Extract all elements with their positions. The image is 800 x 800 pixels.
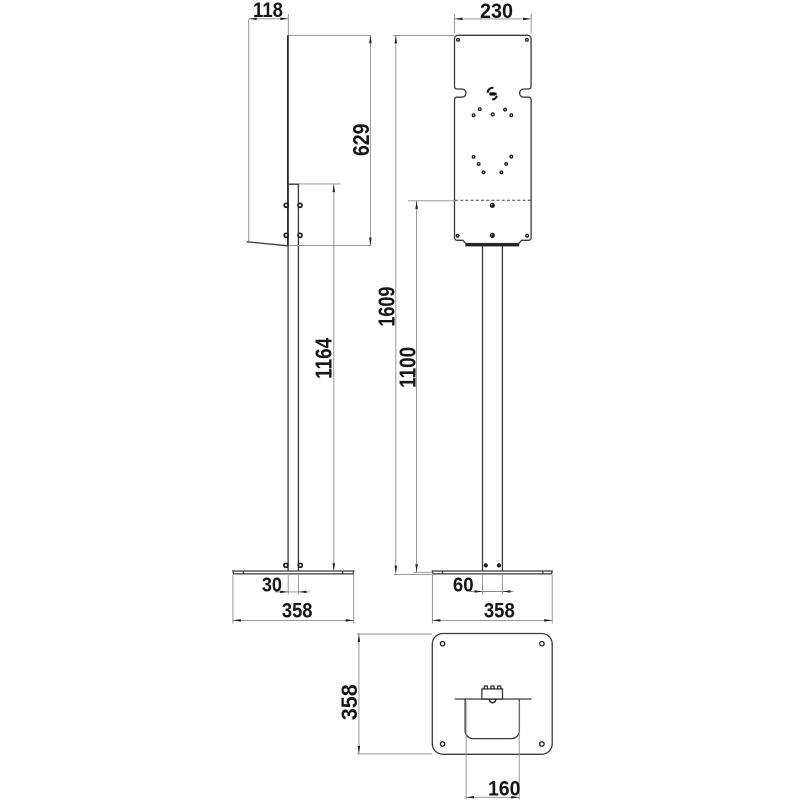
svg-text:160: 160 bbox=[488, 776, 521, 800]
svg-text:60: 60 bbox=[453, 574, 474, 597]
svg-text:1609: 1609 bbox=[374, 287, 400, 327]
svg-text:358: 358 bbox=[337, 684, 362, 720]
svg-text:358: 358 bbox=[484, 598, 515, 622]
svg-text:358: 358 bbox=[282, 599, 313, 623]
svg-text:30: 30 bbox=[262, 574, 282, 597]
svg-text:1100: 1100 bbox=[394, 347, 420, 388]
svg-text:230: 230 bbox=[480, 0, 513, 23]
svg-text:629: 629 bbox=[348, 124, 374, 157]
svg-text:1164: 1164 bbox=[310, 338, 336, 379]
